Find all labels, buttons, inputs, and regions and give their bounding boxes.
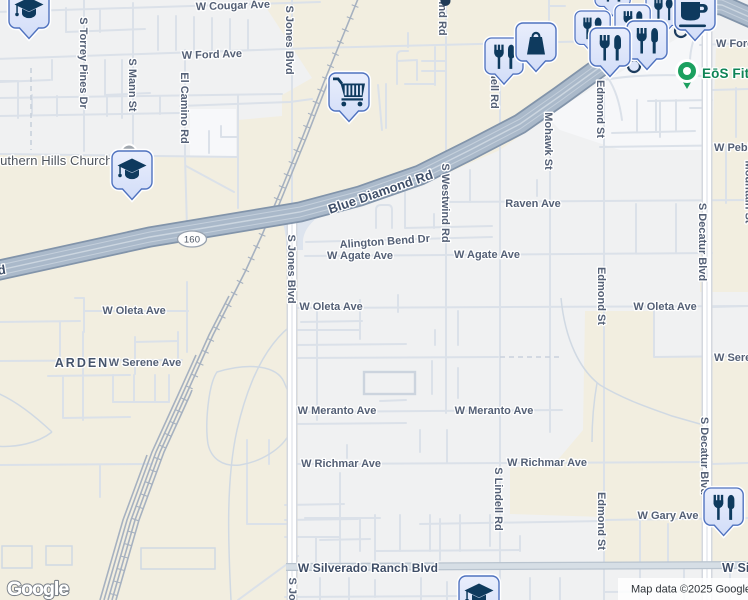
- svg-text:Raven Ave: Raven Ave: [505, 198, 560, 210]
- svg-text:Mohawk St: Mohawk St: [542, 112, 554, 170]
- svg-text:W Agate Ave: W Agate Ave: [327, 250, 393, 262]
- svg-text:W Agate Ave: W Agate Ave: [454, 249, 520, 261]
- svg-text:Edmond St: Edmond St: [595, 267, 607, 325]
- svg-text:S Lindell Rd: S Lindell Rd: [492, 467, 504, 531]
- svg-text:W Pebble: W Pebble: [714, 142, 748, 154]
- svg-text:W Serene Ave: W Serene Ave: [109, 357, 182, 369]
- svg-text:S Decatur Blvd: S Decatur Blvd: [698, 417, 710, 495]
- svg-text:S Torrey Pines Dr: S Torrey Pines Dr: [77, 17, 89, 109]
- svg-text:S Mann St: S Mann St: [126, 58, 138, 112]
- svg-text:S Decatur Blvd: S Decatur Blvd: [696, 203, 708, 281]
- svg-text:160: 160: [184, 235, 200, 246]
- svg-text:W Oleta Ave: W Oleta Ave: [633, 301, 696, 313]
- svg-text:Map data ©2025 Google: Map data ©2025 Google: [631, 584, 748, 596]
- svg-text:W Ford Ave: W Ford Ave: [182, 48, 243, 62]
- svg-text:Edmond St: Edmond St: [594, 80, 606, 138]
- svg-text:S Jones Blvd: S Jones Blvd: [285, 234, 297, 303]
- svg-text:W Meranto Ave: W Meranto Ave: [455, 405, 534, 417]
- svg-text:S Jones Blvd: S Jones Blvd: [286, 577, 298, 600]
- svg-text:W Oleta Ave: W Oleta Ave: [299, 301, 362, 313]
- svg-text:W Silv: W Silv: [722, 561, 748, 575]
- svg-text:W Meranto Ave: W Meranto Ave: [298, 405, 377, 417]
- svg-text:Google: Google: [7, 578, 69, 600]
- svg-text:W Gary Ave: W Gary Ave: [638, 510, 699, 522]
- svg-text:W Oleta Ave: W Oleta Ave: [102, 305, 165, 317]
- svg-text:Mountain St: Mountain St: [743, 161, 748, 224]
- svg-text:W Serene Ave: W Serene Ave: [714, 352, 748, 364]
- svg-text:W Richmar Ave: W Richmar Ave: [507, 457, 587, 469]
- svg-text:El Camino Rd: El Camino Rd: [178, 72, 190, 144]
- svg-text:S Westwind Rd: S Westwind Rd: [439, 163, 451, 242]
- svg-text:Edmond St: Edmond St: [595, 492, 607, 550]
- svg-text:W Richmar Ave: W Richmar Ave: [301, 458, 381, 470]
- svg-text:S Jones Blvd: S Jones Blvd: [283, 5, 295, 74]
- svg-text:Southern Hills Church: Southern Hills Church: [0, 153, 113, 168]
- svg-text:W Ford Av: W Ford Av: [716, 38, 748, 50]
- svg-text:EōS Fitne: EōS Fitne: [702, 66, 748, 81]
- svg-text:ARDEN: ARDEN: [55, 356, 109, 370]
- svg-text:W Silverado Ranch Blvd: W Silverado Ranch Blvd: [298, 561, 438, 575]
